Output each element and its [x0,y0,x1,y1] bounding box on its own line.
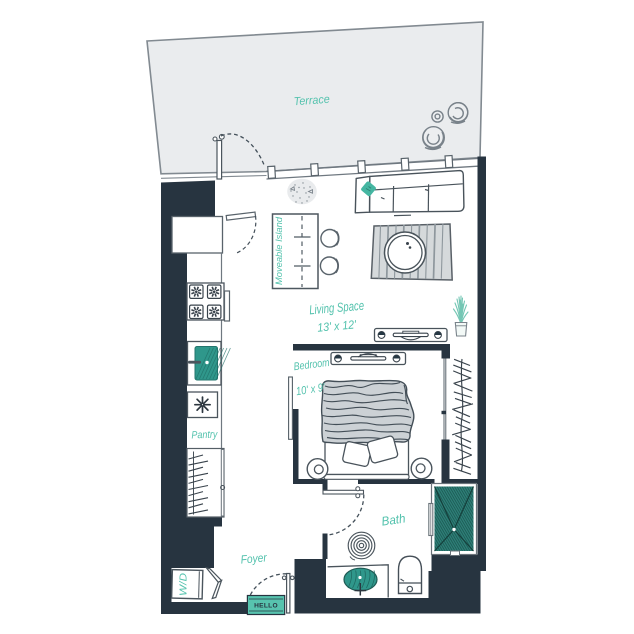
svg-text:Moveable Island: Moveable Island [274,216,284,285]
svg-text:HELLO: HELLO [254,603,278,610]
svg-text:Terrace: Terrace [293,94,330,108]
svg-text:Foyer: Foyer [240,550,268,566]
svg-text:W/D: W/D [179,573,190,596]
svg-text:Pantry: Pantry [191,429,218,442]
